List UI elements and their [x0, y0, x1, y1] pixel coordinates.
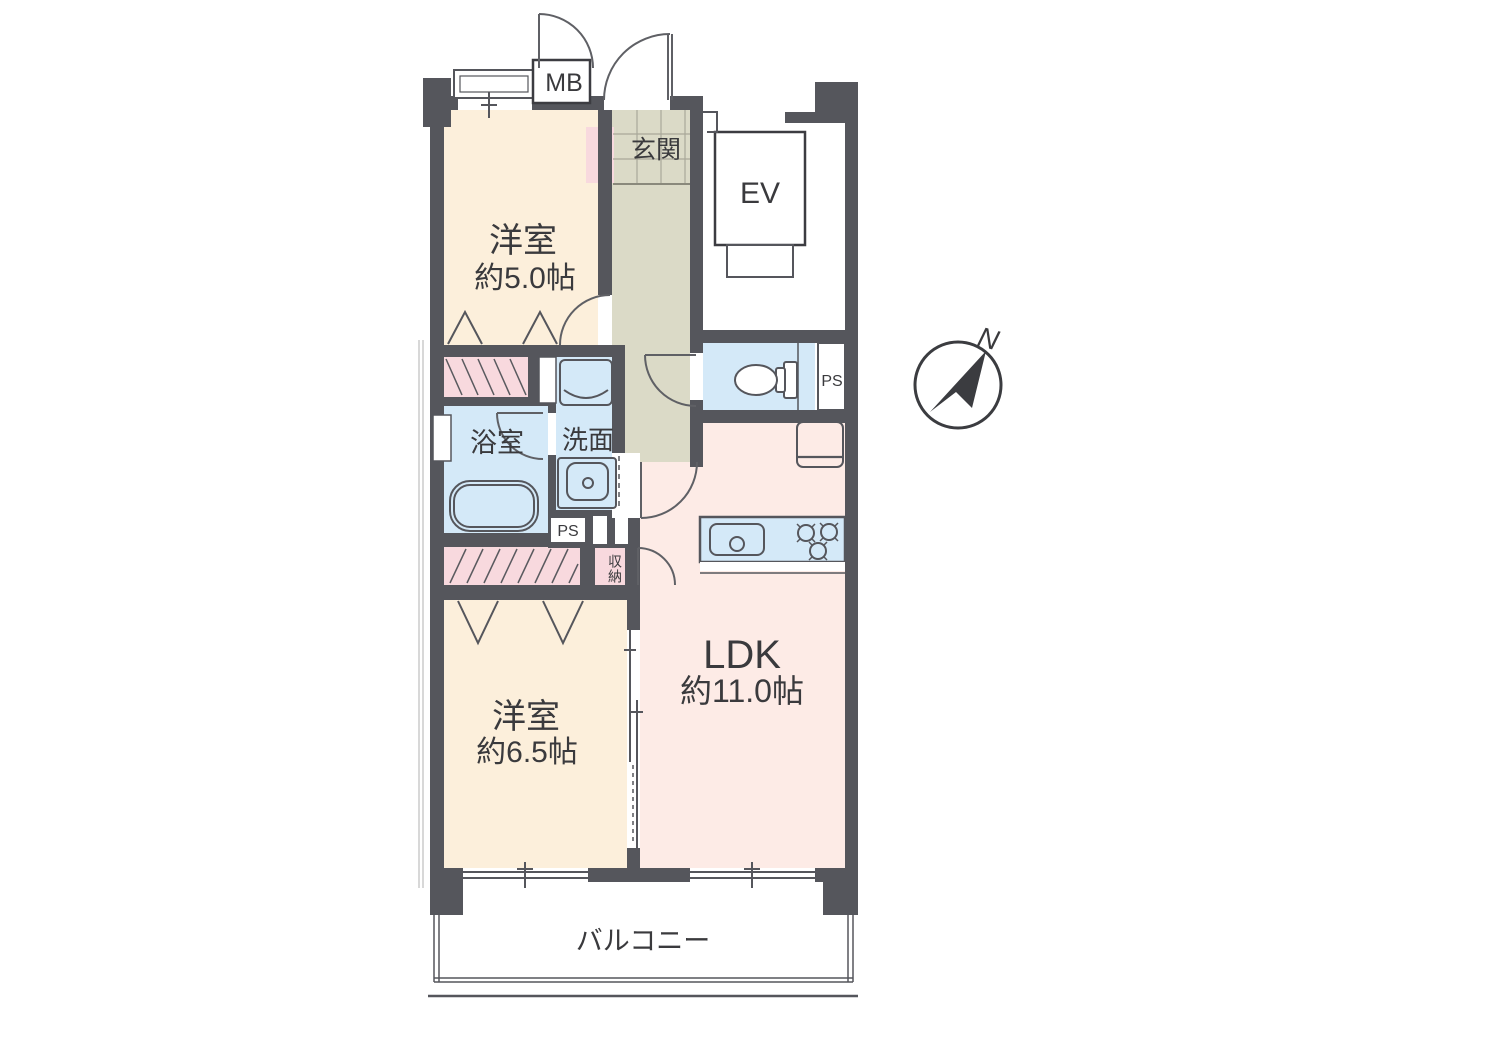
floor-plan-page: N 洋室 約5.0帖 洋室 約6.5帖 LDK 約11.0帖 玄関 浴室 洗面 … — [0, 0, 1500, 1061]
bedroom-5-name: 洋室 — [489, 222, 557, 260]
toilet-door-gap — [690, 353, 703, 400]
bathroom-window — [433, 415, 451, 461]
bathroom-floor — [444, 406, 548, 533]
bathroom-door-gap — [548, 413, 556, 455]
ldk-size: 約11.0帖 — [680, 673, 804, 709]
pipe-space-toilet-label: PS — [821, 373, 842, 390]
vanity-sink-icon — [558, 458, 616, 508]
ldk-name: LDK — [703, 633, 781, 677]
washroom-label: 洗面 — [562, 425, 614, 455]
entrance-door-gap — [604, 96, 670, 110]
washroom-cabinet — [539, 357, 556, 403]
bedroom-5-door-gap — [598, 295, 612, 345]
hallway-floor-lower — [625, 357, 690, 462]
compass-north-arrow — [930, 351, 986, 412]
entrance-door — [604, 34, 672, 100]
bathroom-label: 浴室 — [470, 428, 524, 458]
balcony-label: バルコニー — [576, 926, 710, 956]
compass-north-label: N — [975, 321, 1003, 356]
bedroom-65-size: 約6.5帖 — [476, 736, 578, 769]
compass: N — [915, 321, 1003, 428]
floor-plan-drawing: N 洋室 約5.0帖 洋室 約6.5帖 LDK 約11.0帖 玄関 浴室 洗面 … — [0, 0, 1500, 1061]
storage-label: 収納 — [594, 550, 622, 588]
washing-machine-icon — [560, 360, 612, 405]
left-boundary-line — [419, 340, 423, 888]
bedroom-5-size: 約5.0帖 — [474, 262, 576, 295]
bedroom-65-name: 洋室 — [492, 698, 560, 736]
meter-box-label: MB — [545, 69, 583, 97]
entrance-label: 玄関 — [631, 136, 681, 164]
wall-slot-2 — [615, 516, 628, 544]
elevator-label: EV — [740, 177, 780, 210]
wall-slot-1 — [593, 516, 607, 544]
kitchen-counter — [700, 517, 845, 573]
pipe-space-washroom-label: PS — [557, 523, 578, 540]
